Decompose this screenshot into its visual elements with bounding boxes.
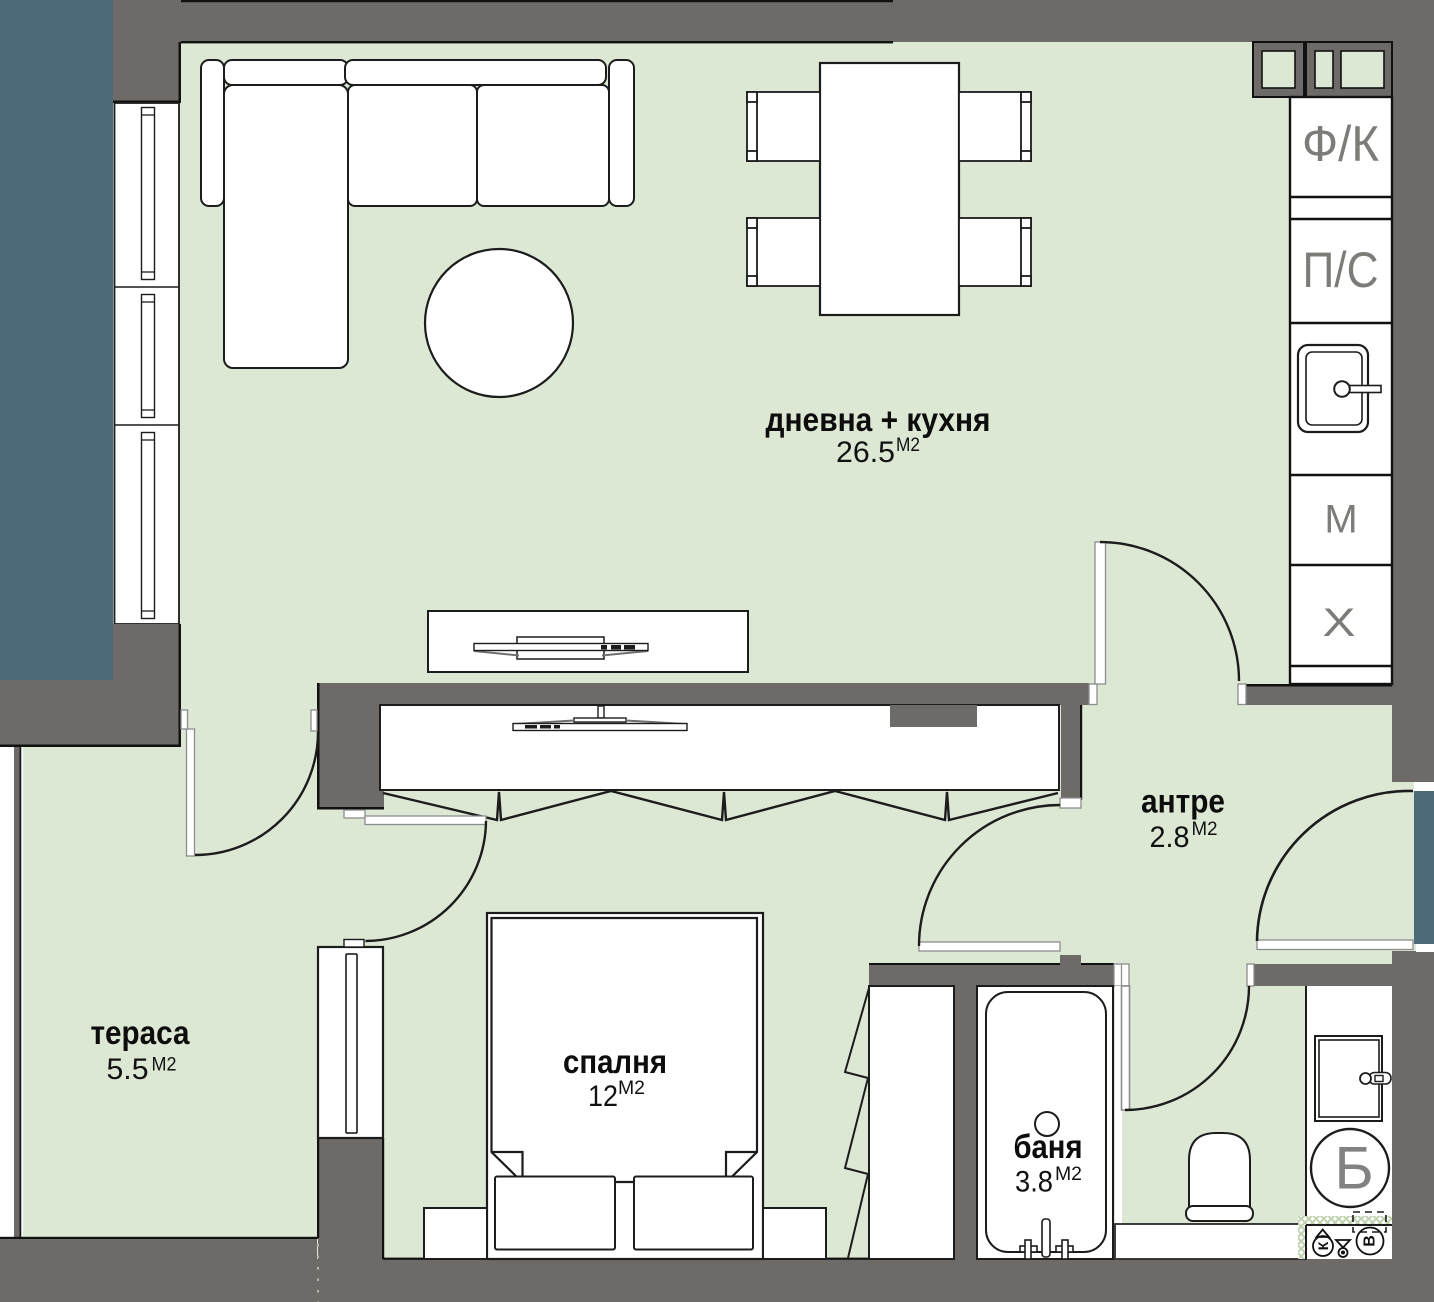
svg-text:В: В — [1362, 1235, 1379, 1247]
svg-text:М2: М2 — [896, 435, 920, 456]
svg-text:Х: Х — [1323, 601, 1356, 645]
svg-text:баня: баня — [1014, 1128, 1083, 1165]
svg-text:М2: М2 — [152, 1055, 177, 1076]
svg-text:М2: М2 — [618, 1078, 645, 1099]
svg-text:26.5: 26.5 — [836, 436, 895, 469]
svg-text:спалня: спалня — [563, 1043, 667, 1080]
svg-text:5.5: 5.5 — [107, 1053, 149, 1086]
svg-text:М2: М2 — [1055, 1164, 1082, 1185]
svg-text:3.8: 3.8 — [1015, 1166, 1053, 1199]
svg-text:М: М — [1324, 498, 1357, 542]
svg-text:2.8: 2.8 — [1150, 821, 1190, 854]
svg-text:тераса: тераса — [91, 1014, 191, 1051]
svg-text:Б: Б — [1334, 1135, 1373, 1202]
svg-text:12: 12 — [588, 1080, 618, 1113]
svg-text:К: К — [1315, 1241, 1331, 1250]
svg-text:М2: М2 — [1192, 819, 1218, 840]
svg-text:П/С: П/С — [1303, 242, 1379, 298]
svg-text:антре: антре — [1141, 783, 1225, 820]
svg-text:дневна + кухня: дневна + кухня — [766, 401, 991, 438]
svg-text:Ф/К: Ф/К — [1302, 116, 1379, 172]
